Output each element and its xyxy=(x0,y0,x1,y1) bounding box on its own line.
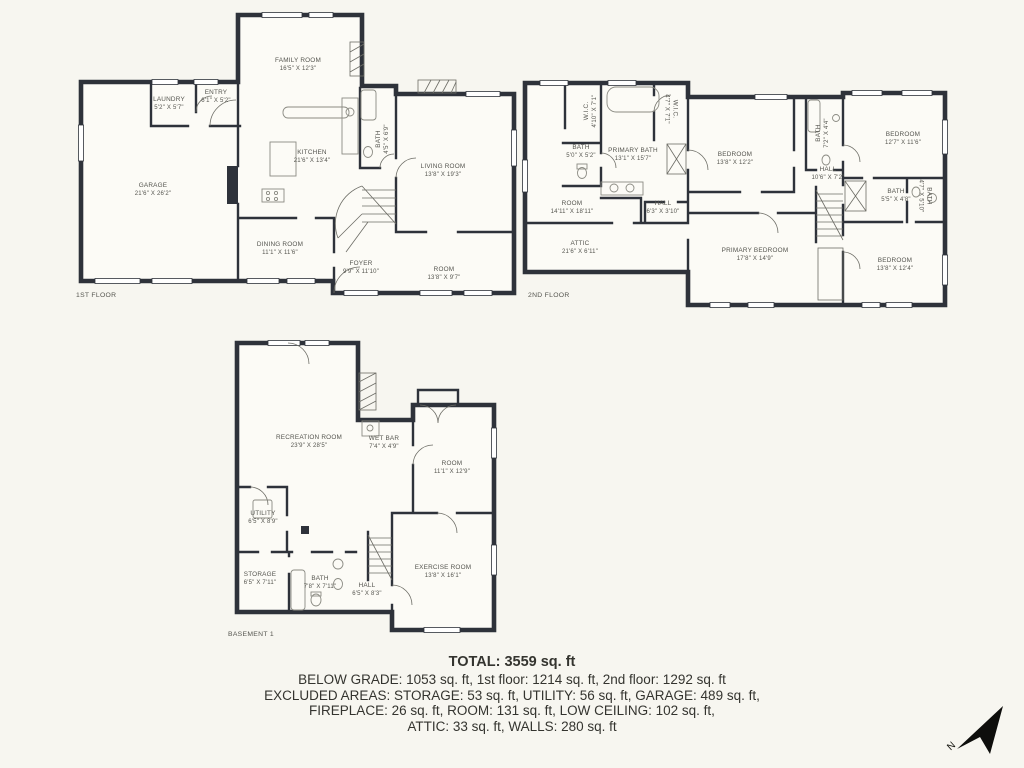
room-label-room-basement: ROOM11'1" X 12'9" xyxy=(434,460,470,477)
summary-line-excluded-3: ATTIC: 33 sq. ft, WALLS: 280 sq. ft xyxy=(0,719,1024,735)
floorplan-page: FAMILY ROOM16'5" X 12'3" LAUNDRY5'2" X 5… xyxy=(0,0,1024,768)
room-label-bath-2f-center: BATH5'5" X 4'8" xyxy=(881,188,910,205)
room-label-bedroom-2f-right-top: BEDROOM12'7" X 11'6" xyxy=(885,131,921,148)
room-label-hall-basement: HALL6'5" X 8'3" xyxy=(352,582,381,599)
room-label-room-2f: ROOM14'11" X 18'11" xyxy=(551,200,594,217)
room-label-wic-right: W.I.C.4'7" X 7'1" xyxy=(662,94,679,123)
room-label-bath-basement: BATH7'8" X 7'11" xyxy=(304,575,337,592)
support-post xyxy=(301,526,309,534)
caption-second-floor: 2ND FLOOR xyxy=(528,292,570,299)
room-label-wic-left: W.I.C.4'10" X 7'1" xyxy=(583,95,600,128)
floor-plans-drawing xyxy=(0,0,1024,768)
summary-line-grades: BELOW GRADE: 1053 sq. ft, 1st floor: 121… xyxy=(0,672,1024,688)
summary-line-excluded-2: FIREPLACE: 26 sq. ft, ROOM: 131 sq. ft, … xyxy=(0,703,1024,719)
room-label-bedroom-2f-right-bottom: BEDROOM13'8" X 12'4" xyxy=(877,257,914,274)
fireplace-hatch-basement xyxy=(359,373,376,410)
caption-first-floor: 1ST FLOOR xyxy=(76,292,116,299)
room-label-room-1f: ROOM13'8" X 9'7" xyxy=(428,266,461,283)
summary-line-excluded-1: EXCLUDED AREAS: STORAGE: 53 sq. ft, UTIL… xyxy=(0,688,1024,704)
room-label-hall-2f: HALL10'6" X 7'2" xyxy=(812,166,845,183)
room-label-entry: ENTRY6'1" X 5'2" xyxy=(201,89,230,106)
room-label-family-room: FAMILY ROOM16'5" X 12'3" xyxy=(275,57,321,74)
fireplace-hatch-living xyxy=(418,80,456,93)
room-label-recreation-room: RECREATION ROOM23'9" X 28'5" xyxy=(276,434,342,451)
room-label-bath-2f-hall: BATH7'2" X 4'4" xyxy=(815,118,832,147)
caption-basement: BASEMENT 1 xyxy=(228,631,274,638)
summary-total: TOTAL: 3559 sq. ft xyxy=(0,654,1024,670)
chimney-block xyxy=(227,166,238,204)
room-label-kitchen: KITCHEN21'6" X 13'4" xyxy=(294,149,331,166)
room-label-storage: STORAGE6'5" X 7'11" xyxy=(244,571,277,588)
room-label-primary-bath: PRIMARY BATH13'1" X 15'7" xyxy=(608,147,658,164)
area-summary: TOTAL: 3559 sq. ft BELOW GRADE: 1053 sq.… xyxy=(0,654,1024,734)
room-label-laundry: LAUNDRY5'2" X 5'7" xyxy=(153,96,185,113)
room-label-wet-bar: WET BAR7'4" X 4'9" xyxy=(369,435,399,452)
room-label-primary-bedroom: PRIMARY BEDROOM17'8" X 14'9" xyxy=(722,247,789,264)
room-label-foyer: FOYER9'9" X 11'10" xyxy=(343,260,379,277)
room-label-bath-2f-small: BATH5'0" X 5'2" xyxy=(566,144,595,161)
room-label-hall-2f-small: HALL6'3" X 3'10" xyxy=(647,200,680,217)
room-label-dining-room: DINING ROOM11'1" X 11'6" xyxy=(257,241,303,258)
room-label-living-room: LIVING ROOM13'8" X 19'3" xyxy=(421,163,466,180)
room-label-bedroom-2f-mid: BEDROOM13'8" X 12'2" xyxy=(717,151,754,168)
room-label-attic: ATTIC21'6" X 6'11" xyxy=(562,240,598,257)
room-label-bath-1f: BATH4'5" X 6'9" xyxy=(375,124,392,153)
room-label-garage: GARAGE21'6" X 26'2" xyxy=(135,182,172,199)
room-label-utility: UTILITY6'5" X 8'9" xyxy=(248,510,277,527)
room-label-bath-2f-right: BATH4'7" X 5'10" xyxy=(916,180,933,213)
room-label-exercise-room: EXERCISE ROOM13'8" X 16'1" xyxy=(415,564,472,581)
